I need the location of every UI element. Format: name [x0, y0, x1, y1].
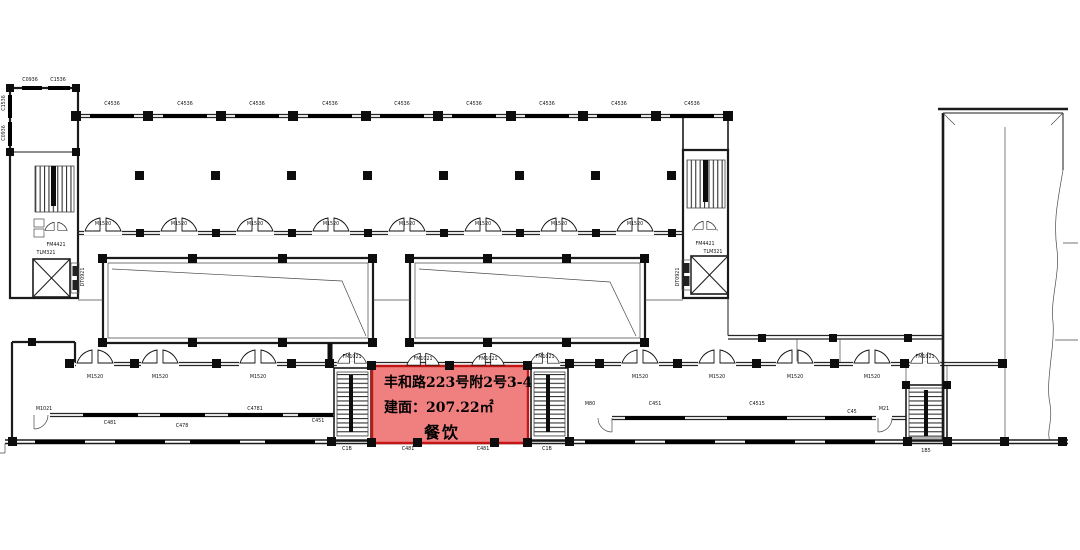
floor-plan-drawing	[0, 0, 1080, 550]
right-stairwell	[687, 160, 725, 230]
right-elevator	[682, 256, 728, 294]
bottom-mid-stairwell	[531, 368, 568, 441]
courtyard-left	[103, 258, 373, 343]
bottom-left-stairwell	[334, 368, 371, 441]
unit-usage: 餐饮	[372, 419, 512, 443]
unit-area: 建面：207.22㎡	[384, 397, 494, 417]
floor-plan-canvas: 丰和路223号附2号3-4 建面：207.22㎡ 餐饮 C0936C1536C1…	[0, 0, 1080, 550]
ramp-structure	[938, 109, 1078, 441]
middle-connectors	[78, 298, 943, 363]
left-elevator	[33, 259, 79, 297]
courtyard-right	[410, 258, 645, 343]
bottom-right-stairwell	[906, 385, 947, 441]
unit-address: 丰和路223号附2号3-4	[384, 372, 532, 392]
